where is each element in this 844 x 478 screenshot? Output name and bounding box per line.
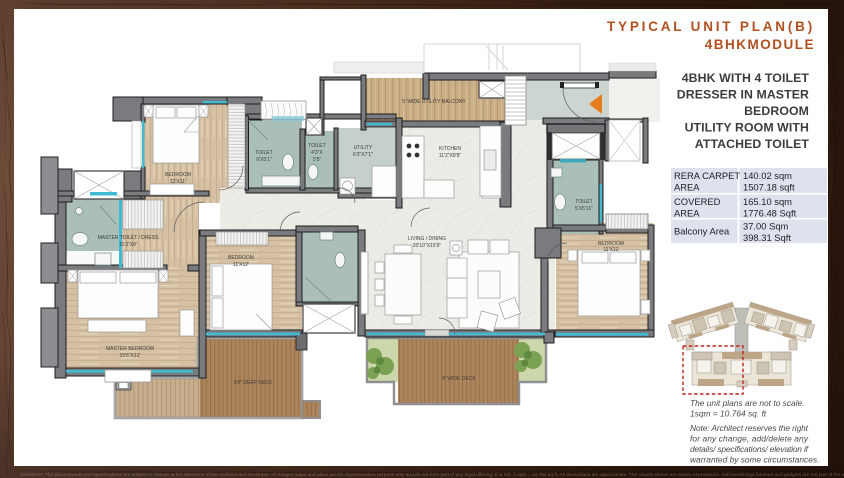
svg-text:4'3"X: 4'3"X	[311, 150, 323, 156]
svg-text:5' WIDE UTILITY BALCONY: 5' WIDE UTILITY BALCONY	[402, 99, 466, 105]
svg-text:11'3"X8': 11'3"X8'	[119, 242, 137, 248]
svg-text:TYPICAL UNIT PLAN(B): TYPICAL UNIT PLAN(B)	[607, 19, 815, 34]
svg-text:6'3"X7'1": 6'3"X7'1"	[353, 152, 373, 158]
svg-text:BEDROOM: BEDROOM	[228, 255, 254, 261]
svg-text:KITCHEN: KITCHEN	[439, 146, 461, 152]
svg-text:UTILITY: UTILITY	[354, 145, 373, 151]
svg-text:15'6"X12': 15'6"X12'	[120, 353, 141, 359]
svg-text:COVERED: COVERED	[674, 196, 721, 207]
svg-text:LIVING / DINING: LIVING / DINING	[408, 236, 446, 242]
svg-text:1776.48 Sqft: 1776.48 Sqft	[743, 208, 797, 219]
svg-text:11'X12: 11'X12	[603, 247, 618, 253]
svg-text:11'X12': 11'X12'	[233, 262, 249, 268]
svg-text:AREA: AREA	[674, 182, 700, 193]
svg-text:Disclaimer: The plans layouts: Disclaimer: The plans layouts and specif…	[20, 472, 844, 478]
svg-text:UTILITY ROOM WITH: UTILITY ROOM WITH	[685, 121, 809, 135]
svg-text:warranted by some circumstance: warranted by some circumstances.	[690, 455, 819, 465]
svg-text:1507.18 sqft: 1507.18 sqft	[743, 182, 795, 193]
svg-text:11'2"X8'8": 11'2"X8'8"	[439, 153, 462, 159]
svg-text:details/ specifications/ eleva: details/ specifications/ elevation if	[690, 444, 810, 454]
svg-text:5'5": 5'5"	[313, 157, 322, 163]
svg-text:DRESSER IN MASTER: DRESSER IN MASTER	[677, 88, 809, 102]
svg-text:165.10 sqm: 165.10 sqm	[743, 196, 792, 207]
svg-text:MASTER BEDROOM: MASTER BEDROOM	[106, 346, 154, 352]
svg-text:BEDROOM: BEDROOM	[165, 172, 191, 178]
svg-text:4BHKMODULE: 4BHKMODULE	[705, 37, 815, 52]
svg-text:BEDROOM: BEDROOM	[744, 104, 809, 118]
svg-text:9'6" DEEP DECK: 9'6" DEEP DECK	[234, 380, 273, 386]
svg-text:140.02 sqm: 140.02 sqm	[743, 170, 792, 181]
svg-text:MASTER TOILET / DRESS: MASTER TOILET / DRESS	[98, 235, 160, 241]
svg-text:TOILET: TOILET	[575, 199, 592, 205]
svg-text:TOILET: TOILET	[308, 143, 325, 149]
svg-text:5'X5'11": 5'X5'11"	[575, 206, 593, 212]
svg-text:20'10"X15'9": 20'10"X15'9"	[413, 243, 441, 249]
svg-text:37.00 Sqm: 37.00 Sqm	[743, 221, 789, 232]
svg-text:Balcony Area: Balcony Area	[674, 226, 730, 237]
svg-text:for any change, add/delete any: for any change, add/delete any	[690, 434, 809, 444]
svg-text:6'X5'1": 6'X5'1"	[256, 157, 272, 163]
svg-text:AREA: AREA	[674, 208, 700, 219]
svg-text:1sqm = 10.764 sq. ft: 1sqm = 10.764 sq. ft	[690, 409, 767, 419]
svg-text:Note: Architect reserves the: Note: Architect reserves the right	[690, 423, 809, 433]
svg-text:The unit plans are not to scal: The unit plans are not to scale.	[690, 398, 805, 408]
svg-text:ATTACHED TOILET: ATTACHED TOILET	[695, 137, 810, 151]
svg-text:12'X11': 12'X11'	[170, 179, 186, 185]
svg-text:8' WIDE DECK: 8' WIDE DECK	[442, 376, 476, 382]
svg-text:4BHK WITH 4 TOILET: 4BHK WITH 4 TOILET	[682, 71, 810, 85]
svg-text:398.31 Sqft: 398.31 Sqft	[743, 232, 791, 243]
svg-text:RERA CARPET: RERA CARPET	[674, 170, 740, 181]
svg-text:TOILET: TOILET	[255, 150, 272, 156]
